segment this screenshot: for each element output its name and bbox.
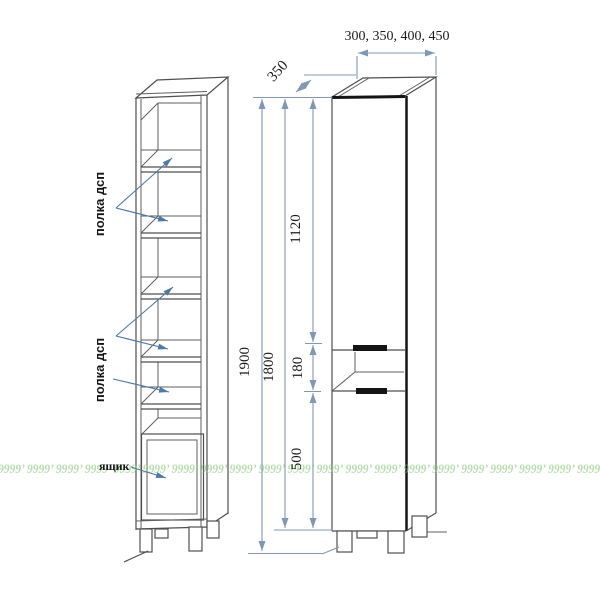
drawer-front-panel bbox=[147, 440, 197, 514]
shelf-callouts: полка дсп полка дсп ящик bbox=[92, 158, 173, 478]
drawer-front bbox=[142, 434, 204, 520]
left-shelf-unit-drawing bbox=[124, 77, 228, 562]
dim-height-carcass-label: 1800 bbox=[261, 352, 277, 382]
leg bbox=[412, 516, 427, 537]
dim-niche-label: 180 bbox=[290, 357, 306, 380]
dim-depth-line bbox=[296, 80, 311, 92]
dim-lower-label: 500 bbox=[289, 448, 305, 471]
dim-height-total-label: 1900 bbox=[237, 347, 253, 377]
dim-width-label: 300, 350, 400, 450 bbox=[345, 29, 450, 44]
leg bbox=[337, 531, 352, 552]
leg bbox=[388, 531, 404, 553]
dim-depth-label: 350 bbox=[265, 58, 292, 85]
shelf-callout-bottom-label: полка дсп bbox=[92, 338, 107, 402]
leg bbox=[207, 521, 219, 538]
cabinet-top-front-edge bbox=[332, 97, 405, 98]
right-cabinet-drawing bbox=[332, 77, 447, 553]
leg bbox=[140, 529, 152, 552]
shelf-callout-top-label: полка дсп bbox=[92, 172, 107, 236]
furniture-technical-drawing: 9999’ 9999’ 9999’ 9999’ 9999’ 9999’ 9999… bbox=[0, 0, 600, 600]
drawer-callout-label: ящик bbox=[99, 459, 130, 473]
leg bbox=[357, 531, 377, 538]
door-handle-upper bbox=[353, 345, 387, 351]
ground-line-left bbox=[124, 551, 148, 562]
leg bbox=[189, 527, 202, 551]
left-unit-shelves bbox=[141, 150, 201, 409]
left-unit-top-face bbox=[136, 77, 228, 98]
door-handle-lower bbox=[356, 388, 387, 394]
leg bbox=[155, 529, 168, 538]
dim-upper-label: 1120 bbox=[288, 214, 304, 243]
